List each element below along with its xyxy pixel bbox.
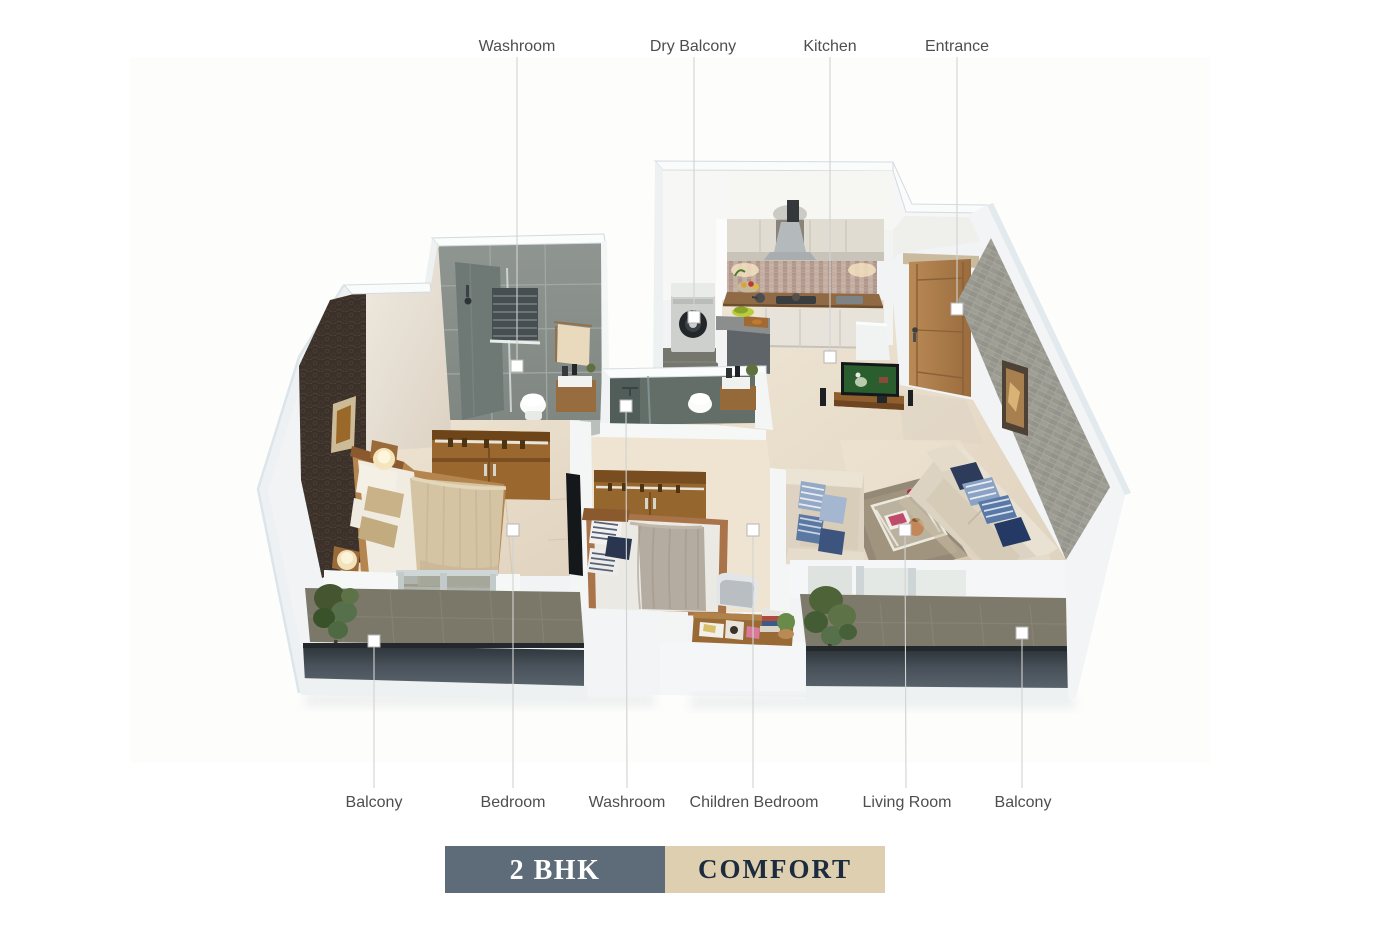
svg-text:Kitchen: Kitchen (803, 38, 856, 55)
svg-text:Washroom: Washroom (589, 794, 666, 811)
svg-text:2 BHK: 2 BHK (510, 855, 601, 886)
svg-text:Balcony: Balcony (995, 794, 1052, 811)
svg-text:Washroom: Washroom (479, 38, 556, 55)
svg-text:COMFORT: COMFORT (698, 854, 852, 884)
svg-text:Children Bedroom: Children Bedroom (690, 794, 819, 811)
svg-text:Entrance: Entrance (925, 38, 989, 55)
svg-text:Bedroom: Bedroom (481, 794, 546, 811)
svg-text:Dry Balcony: Dry Balcony (650, 38, 736, 55)
svg-text:Living Room: Living Room (863, 794, 952, 811)
svg-text:Balcony: Balcony (346, 794, 403, 811)
